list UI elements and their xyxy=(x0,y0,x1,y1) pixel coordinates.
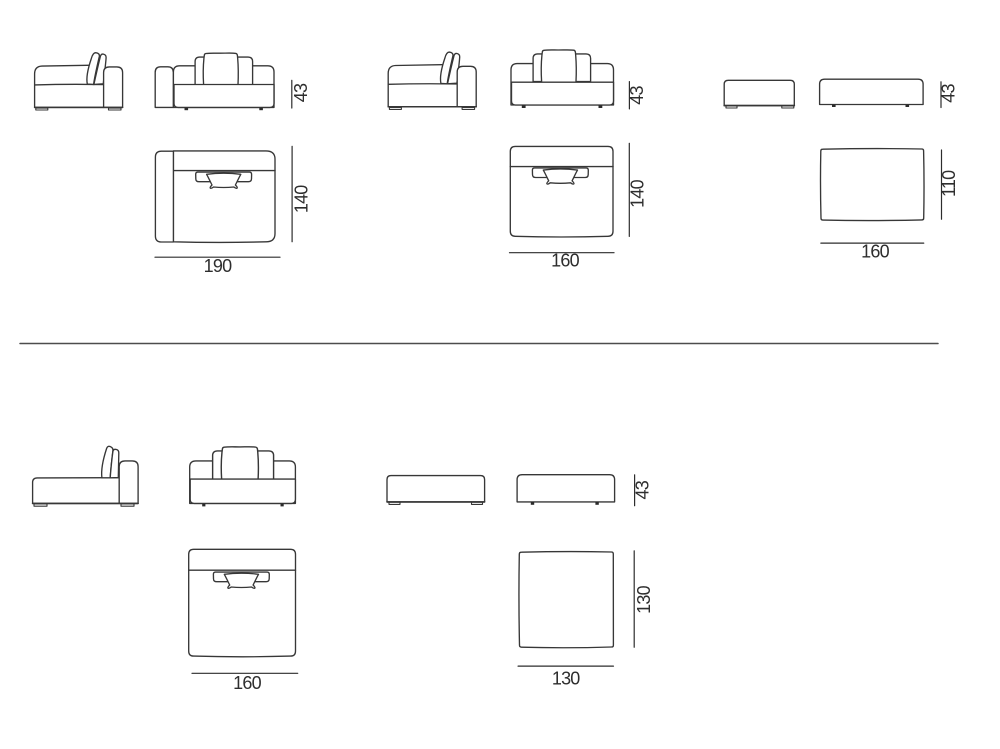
svg-text:110: 110 xyxy=(939,170,959,197)
svg-text:160: 160 xyxy=(233,673,261,693)
svg-text:43: 43 xyxy=(633,480,653,499)
svg-text:160: 160 xyxy=(551,250,579,270)
svg-text:43: 43 xyxy=(938,84,958,103)
svg-text:130: 130 xyxy=(552,669,580,689)
svg-text:140: 140 xyxy=(291,185,311,213)
svg-text:160: 160 xyxy=(861,242,889,262)
svg-text:130: 130 xyxy=(634,585,654,613)
svg-text:140: 140 xyxy=(628,179,648,207)
svg-text:190: 190 xyxy=(204,256,232,276)
svg-text:43: 43 xyxy=(291,83,311,102)
svg-text:43: 43 xyxy=(627,86,647,105)
